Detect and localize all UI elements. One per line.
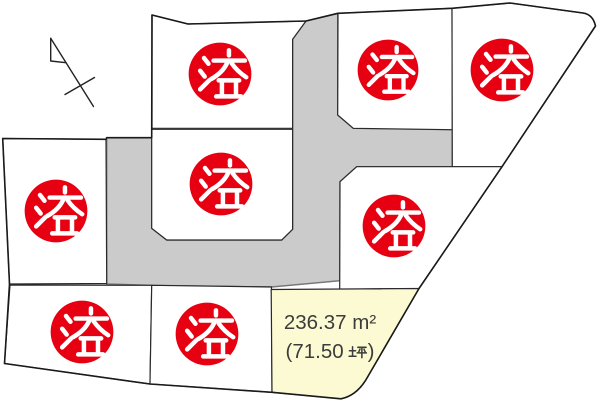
north-arrow-icon [51,38,95,106]
sold-stamp-icon [190,153,253,216]
sold-stamp-icon [363,195,426,258]
sold-stamp-icon [471,39,534,102]
area-sqm-line: 236.37 m² [264,308,396,337]
tsubo-kanji-icon [348,342,367,361]
sold-stamp-icon [176,303,239,366]
area-sqm-unit: m² [352,311,376,334]
sold-stamp-icon [25,180,88,243]
sold-stamp-icon [189,43,252,106]
area-tsubo-line: (71.50坪) [264,337,396,366]
sold-stamp-icon [358,40,419,101]
area-tsubo-prefix: (71.50 [286,340,344,363]
lot-map: 236.37 m² (71.50坪) [0,0,600,404]
sold-stamp-icon [51,301,114,364]
area-sqm-value: 236.37 [284,311,347,334]
area-label: 236.37 m² (71.50坪) [264,308,396,366]
area-tsubo-suffix: ) [368,340,375,363]
area-tsubo-kanji-text: 坪 [368,337,369,338]
